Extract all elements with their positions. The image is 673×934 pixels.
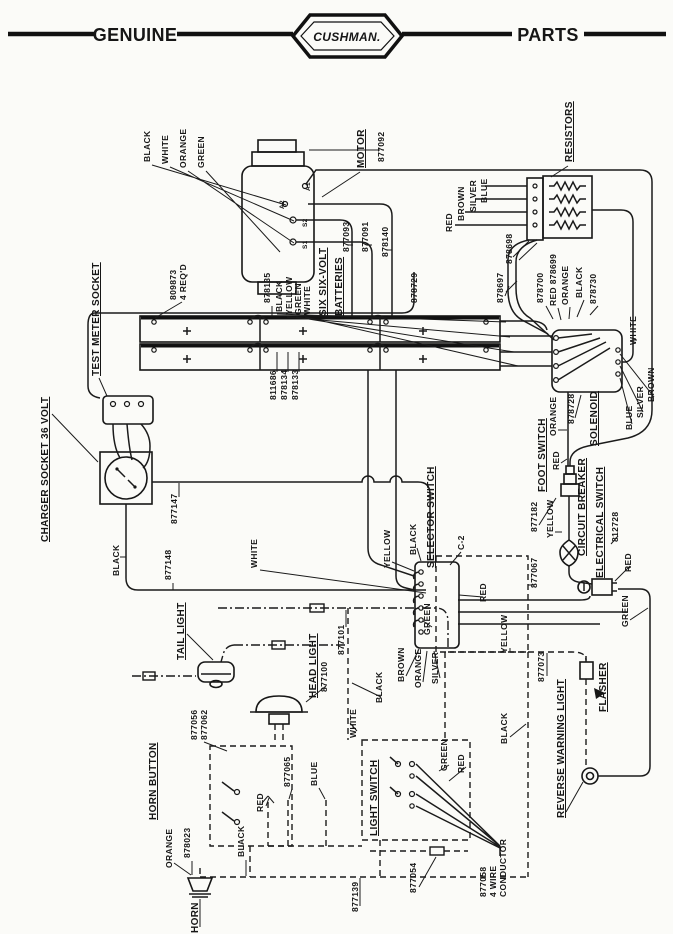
label-solenoid: SOLENOID — [589, 391, 600, 446]
wire-blue-lightswitch: BLUE — [309, 761, 319, 786]
part-877054: 877054 — [408, 863, 418, 893]
resistor-element-1 — [549, 182, 586, 190]
electrical-switch — [578, 579, 617, 595]
solenoid-blades — [558, 334, 610, 380]
wire-orange-motor: ORANGE — [178, 129, 188, 168]
wiring-diagram-svg: GENUINE CUSHMAN. PARTS — [0, 0, 673, 934]
inline-connector-3 — [430, 847, 444, 855]
part-877065: 877065 — [282, 757, 292, 787]
label-light-switch: LIGHT SWITCH — [369, 760, 380, 836]
wire-orange-horn: ORANGE — [164, 829, 174, 868]
part-878134: 878134 — [279, 370, 289, 400]
label-test-meter-socket: TEST METER SOCKET — [91, 262, 102, 376]
part-878728: 878728 — [566, 394, 576, 424]
part-878730: 878730 — [588, 274, 598, 304]
label-reverse-warning: REVERSE WARNING LIGHT — [556, 679, 567, 818]
wire-orange-solenoid-top: ORANGE — [560, 266, 570, 305]
label-charger-socket: CHARGER SOCKET 36 VOLT — [40, 397, 51, 542]
test-meter-socket — [103, 396, 153, 424]
part-878140: 878140 — [380, 227, 390, 257]
wire-brown-solenoid: BROWN — [646, 367, 656, 402]
wire-yellow-flasher: YELLOW — [499, 614, 509, 653]
wire-black-solenoid-top: BLACK — [574, 266, 584, 298]
part-878023: 878023 — [182, 828, 192, 858]
wire-yellow-breaker: YELLOW — [545, 499, 555, 538]
label-c2: C-2 — [456, 535, 466, 550]
header-brand: CUSHMAN. — [313, 30, 380, 44]
charger-socket — [100, 452, 152, 504]
wire-orange-selector: ORANGE — [413, 649, 423, 688]
part-877147: 877147 — [169, 494, 179, 524]
header-genuine: GENUINE — [93, 25, 177, 45]
part-878135: 878135 — [262, 273, 272, 303]
part-812728: 812728 — [610, 512, 620, 542]
part-809873: 809873 — [168, 270, 178, 300]
wire-black-selector: BLACK — [408, 523, 418, 555]
wire-white-solenoid: WHITE — [628, 316, 638, 345]
wire-red-foot: RED — [551, 451, 561, 470]
dashed-wires — [200, 556, 586, 878]
wire-brown-resistor: BROWN — [456, 186, 466, 221]
label-horn: HORN — [190, 902, 201, 933]
part-878700: 878700 — [535, 273, 545, 303]
wire-brown-selector: BROWN — [396, 647, 406, 682]
header: GENUINE CUSHMAN. PARTS — [8, 15, 666, 57]
label-flasher: FLASHER — [598, 662, 609, 712]
wire-black-battery: BLACK — [274, 280, 284, 312]
wire-white-bus: WHITE — [249, 539, 259, 568]
part-877091: 877091 — [360, 222, 370, 252]
wire-red-lightswitch: RED — [255, 793, 265, 812]
horn-button-dashed-box — [210, 746, 292, 846]
solenoid — [552, 330, 622, 392]
wire-red-electrical: RED — [623, 553, 633, 572]
wire-red-selector: RED — [478, 583, 488, 602]
wire-white-battery: WHITE — [302, 286, 312, 315]
resistor-bank — [527, 176, 592, 240]
circuit-breaker — [560, 540, 578, 566]
part-877062: 877062 — [199, 710, 209, 740]
label-motor: MOTOR — [356, 129, 367, 168]
wire-green-conductor: GREEN — [439, 739, 449, 771]
wire-white-motor: WHITE — [160, 135, 170, 164]
wire-green-electrical: GREEN — [620, 595, 630, 627]
wire-blue-solenoid: BLUE — [624, 405, 634, 430]
terminal-s2: S2 — [302, 218, 309, 227]
resistor-element-3 — [549, 208, 586, 216]
reverse-warning-light — [582, 768, 598, 784]
resistor-element-4 — [549, 221, 586, 229]
part-877073: 877073 — [536, 652, 546, 682]
scanned-wiring-diagram-page: GENUINE CUSHMAN. PARTS — [0, 0, 673, 934]
part-877093: 877093 — [341, 222, 351, 252]
part-877067: 877067 — [529, 558, 539, 588]
motor — [242, 140, 314, 294]
part-877056: 877056 — [189, 710, 199, 740]
label-resistors: RESISTORS — [564, 101, 575, 162]
part-877092: 877092 — [376, 132, 386, 162]
wire-green-motor: GREEN — [196, 136, 206, 168]
terminal-a2: A2 — [279, 200, 286, 209]
label-head-light: HEAD LIGHT — [308, 633, 319, 698]
part-878729: 878729 — [409, 273, 419, 303]
wire-red-resistor: RED — [444, 213, 454, 232]
part-877058-line2: 4 WIRE — [488, 866, 498, 897]
part-877182: 877182 — [529, 502, 539, 532]
part-877101: 877101 — [336, 625, 346, 655]
wire-black-reverse: BLACK — [499, 712, 509, 744]
part-877058-line3: CONDUCTOR — [498, 839, 508, 897]
part-878698: 878698 — [504, 234, 514, 264]
part-811686: 811686 — [268, 370, 278, 400]
terminal-a1: A1 — [305, 182, 312, 191]
label-circuit-breaker: CIRCUIT BREAKER — [577, 458, 588, 556]
part-877139: 877139 — [350, 882, 360, 912]
wire-white-headlight: WHITE — [348, 709, 358, 738]
wire-silver-resistor: SILVER — [468, 180, 478, 212]
wire-black-charger: BLACK — [111, 544, 121, 576]
wire-green-selector: GREEN — [422, 603, 432, 635]
horn-button — [222, 782, 240, 825]
wire-silver-solenoid: SILVER — [635, 386, 645, 418]
part-878697: 878697 — [495, 273, 505, 303]
battery-bank — [140, 316, 500, 371]
label-horn-button: HORN BUTTON — [148, 742, 159, 820]
label-batteries: BATTERIES — [334, 257, 345, 316]
header-parts: PARTS — [517, 25, 578, 45]
selector-switch-connector — [414, 562, 459, 648]
label-tail-light: TAIL LIGHT — [176, 602, 187, 660]
wire-silver-selector: SILVER — [430, 652, 440, 684]
part-877058: 877058 — [478, 867, 488, 897]
wire-black-horn: BLACK — [236, 825, 246, 857]
diagram-labels: BLACKWHITEORANGEGREENMOTOR877092A1A2S2S1… — [40, 101, 656, 933]
part-809873-qty: 4 REQ'D — [178, 264, 188, 300]
selector-dashed-box — [436, 556, 528, 652]
horn — [188, 878, 212, 897]
wire-blue-resistor: BLUE — [479, 178, 489, 203]
tail-light — [198, 662, 234, 688]
label-six-six-volt: SIX SIX-VOLT — [318, 248, 329, 316]
label-electrical-switch: ELECTRICAL SWITCH — [595, 467, 606, 578]
label-selector-switch: SELECTOR SWITCH — [426, 466, 437, 568]
label-foot-switch: FOOT SWITCH — [537, 418, 548, 492]
wire-black-motor: BLACK — [142, 130, 152, 162]
light-switch — [390, 757, 415, 808]
resistor-element-2 — [549, 195, 586, 203]
head-light — [250, 696, 308, 724]
wire-red-conductor: RED — [456, 754, 466, 773]
part-877100: 877100 — [319, 662, 329, 692]
wire-yellow-selector: YELLOW — [382, 529, 392, 568]
part-878699: RED 878699 — [548, 254, 558, 306]
wire-black-headlight: BLACK — [374, 671, 384, 703]
part-878133: 878133 — [290, 370, 300, 400]
part-877148: 877148 — [163, 550, 173, 580]
wire-orange-foot: ORANGE — [548, 397, 558, 436]
terminal-s1: S1 — [302, 240, 309, 249]
